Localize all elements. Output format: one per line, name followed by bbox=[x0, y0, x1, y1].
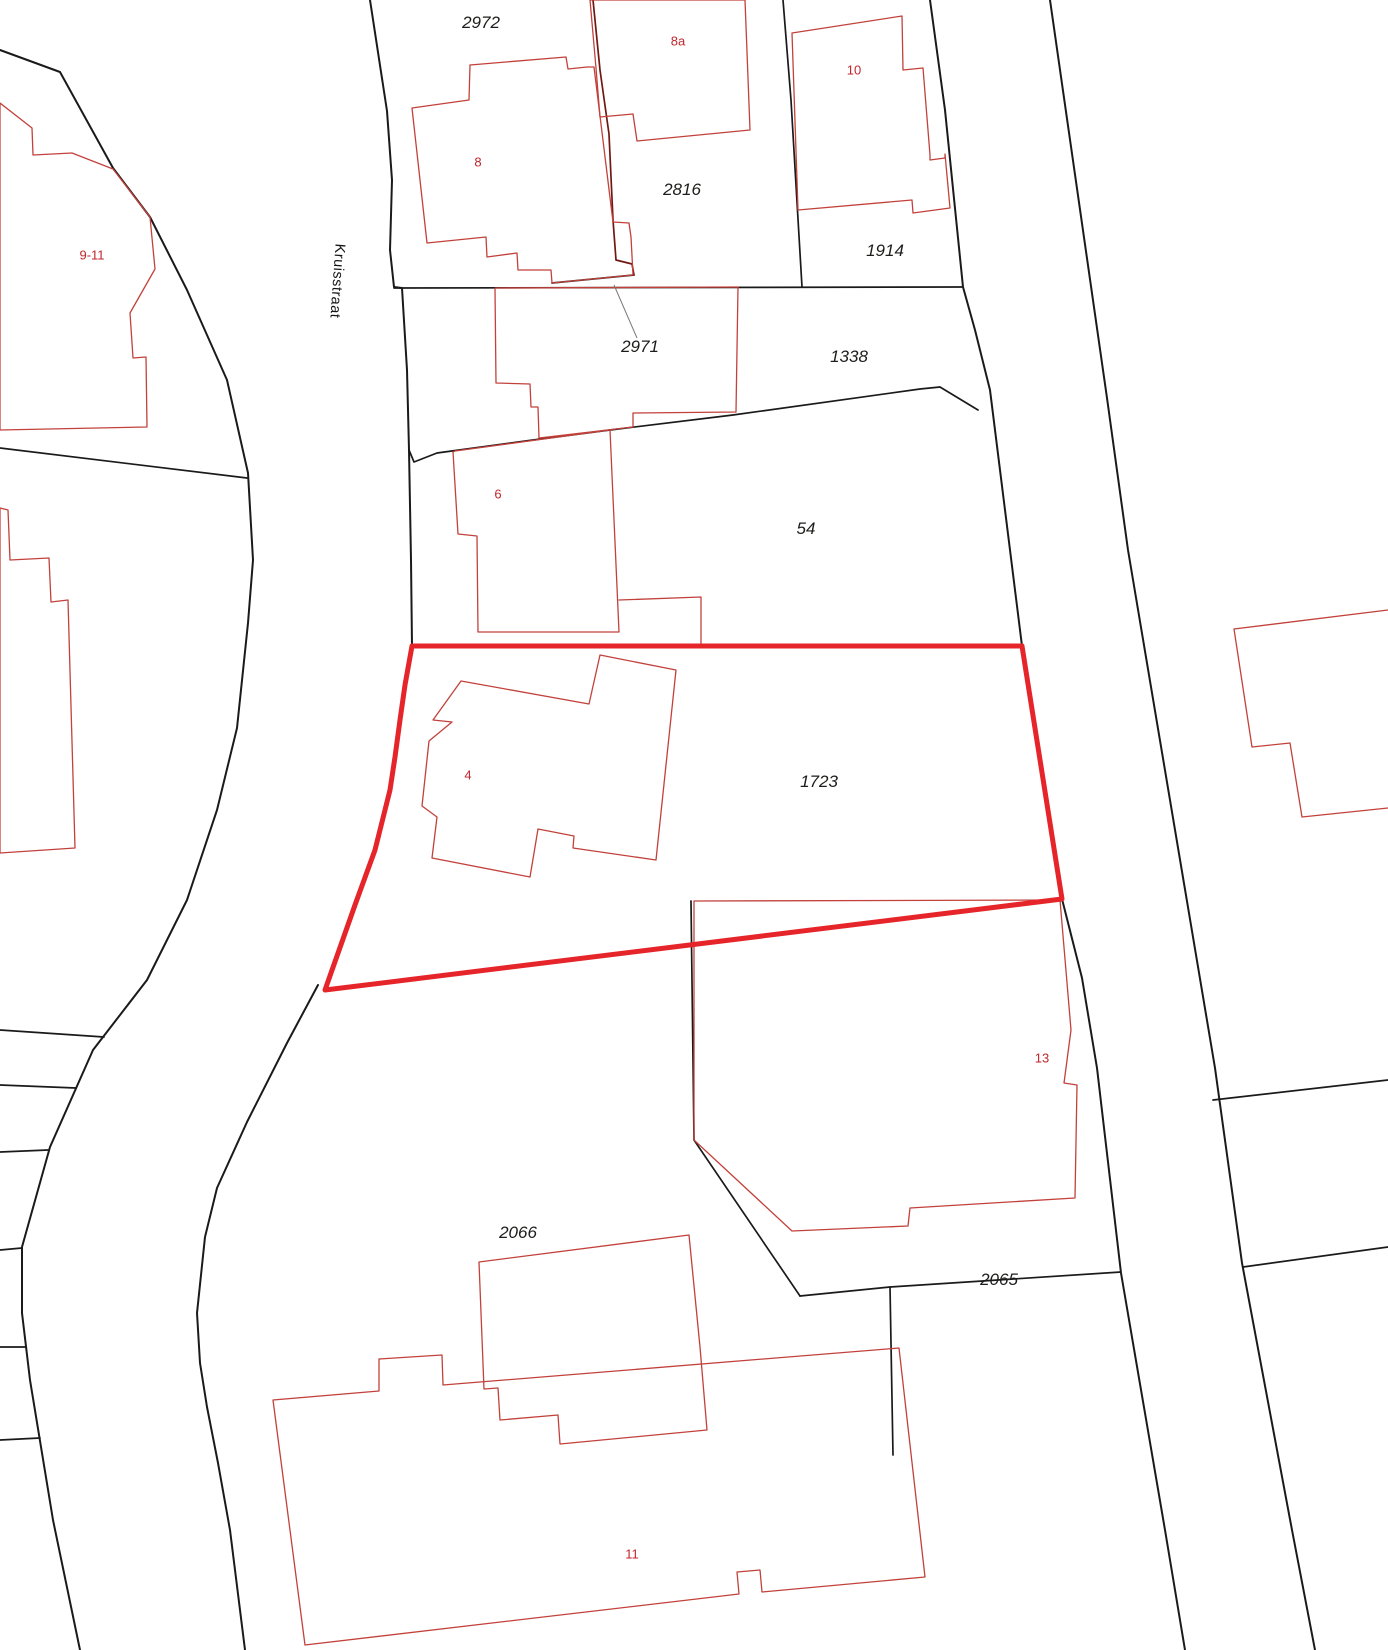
building-10 bbox=[792, 16, 950, 213]
building-6-annex bbox=[619, 597, 701, 644]
kruisstraat-east-edge-upper bbox=[370, 0, 412, 646]
building-right-partial bbox=[1234, 610, 1388, 817]
building-6 bbox=[453, 430, 619, 632]
kruisstraat-east-edge-lower bbox=[197, 985, 318, 1650]
boundary-below-2065 bbox=[890, 1287, 893, 1455]
east-road-west-edge-upper bbox=[930, 0, 1022, 646]
boundary-right-branch-1 bbox=[1213, 1080, 1388, 1100]
boundary-1338-54 bbox=[409, 387, 978, 462]
boundary-sw-6 bbox=[0, 1438, 40, 1440]
cadastral-map[interactable]: 2972281619142971133854172320662065 8a108… bbox=[0, 0, 1388, 1650]
building-8 bbox=[412, 57, 633, 283]
boundary-sw-2 bbox=[0, 1085, 76, 1088]
boundary-right-branch-2 bbox=[1243, 1247, 1388, 1267]
boundary-2972-2816 bbox=[593, 0, 634, 275]
buildings bbox=[0, 0, 1388, 1645]
building-11 bbox=[273, 1348, 925, 1645]
boundary-2065-south bbox=[800, 1272, 1121, 1296]
boundary-sw-3 bbox=[0, 1150, 48, 1152]
parcel-boundaries bbox=[0, 0, 1388, 1455]
building-13 bbox=[694, 900, 1077, 1231]
building-9-11 bbox=[0, 103, 155, 430]
map-canvas bbox=[0, 0, 1388, 1650]
building-left-lower bbox=[0, 508, 75, 853]
building-2971-shed bbox=[495, 287, 738, 438]
boundary-sw-1 bbox=[0, 1030, 104, 1037]
building-2066 bbox=[479, 1235, 707, 1444]
building-8a bbox=[590, 0, 750, 141]
boundary-left-parcel bbox=[0, 448, 247, 478]
label-leader-line bbox=[614, 285, 637, 338]
east-road-east-edge bbox=[1050, 0, 1315, 1650]
road-lines bbox=[0, 0, 1315, 1650]
boundary-2066-2065 bbox=[691, 901, 800, 1296]
building-4 bbox=[422, 655, 676, 877]
boundary-sw-4 bbox=[0, 1248, 22, 1250]
